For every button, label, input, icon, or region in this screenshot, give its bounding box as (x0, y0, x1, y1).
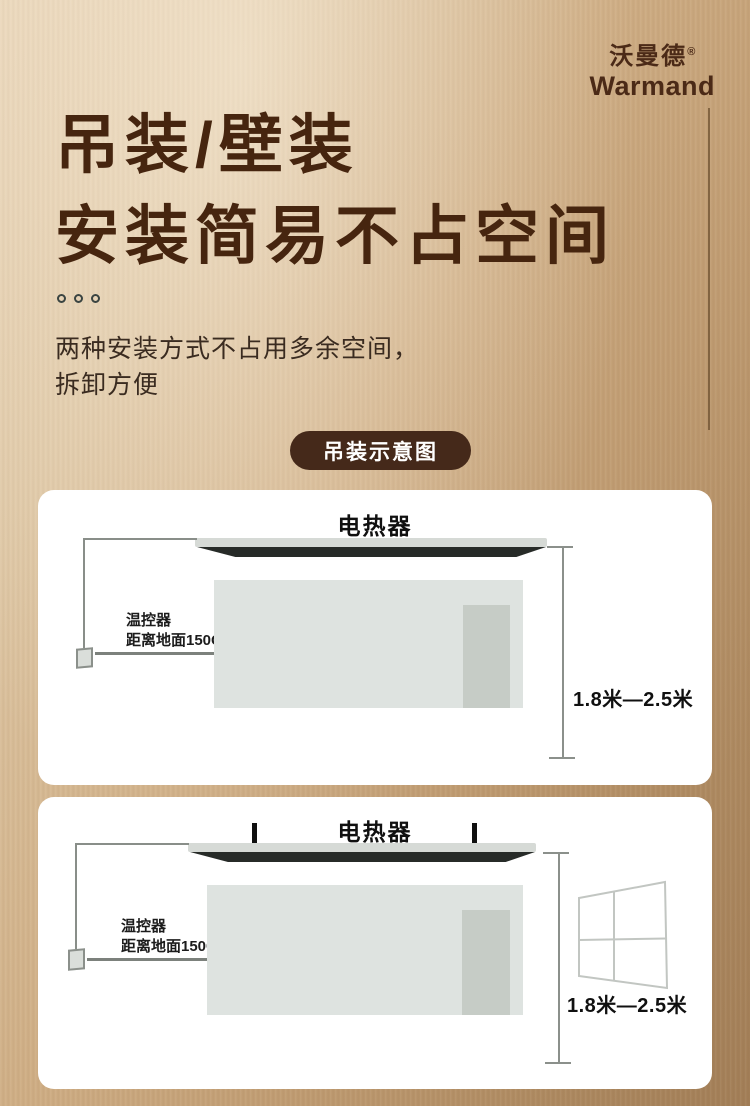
page-title: 吊装/壁装安装简易不占空间 (55, 100, 615, 282)
heater-panel-top (188, 843, 536, 852)
dimension-line (558, 853, 560, 1063)
section-badge-label: 吊装示意图 (323, 436, 438, 466)
subtitle-line1: 两种安装方式不占用多余空间， (55, 335, 419, 363)
mount-post-right (472, 823, 477, 844)
dimension-cap-bottom (549, 757, 575, 759)
thermostat-wire-horizontal (75, 843, 189, 845)
dot-icon (91, 294, 100, 303)
room-inner-rectangle (462, 910, 510, 1015)
thermostat-box (76, 647, 93, 668)
thermostat-wire-vertical (83, 538, 85, 650)
brand-name-cn: 沃曼德® (589, 44, 715, 71)
heater-panel-top (195, 538, 547, 547)
thermostat-label: 温控器 (126, 611, 171, 631)
heater-label: 电热器 (38, 507, 712, 541)
brand-name-en: Warmand (589, 71, 715, 101)
diagram-card-wall-mount: 电热器 温控器 距离地面150CM 1.8米—2.5米 (38, 797, 712, 1089)
dot-icon (57, 294, 66, 303)
thermostat-label: 温控器 (121, 917, 166, 937)
dimension-cap-top (543, 852, 569, 854)
page-title-line2: 安装简易不占空间 (55, 200, 615, 272)
diagram-card-ceiling-mount: 电热器 温控器 距离地面150CM 1.8米—2.5米 (38, 490, 712, 785)
page-title-line1: 吊装/壁装 (55, 109, 359, 181)
decorative-dots (57, 294, 100, 303)
heater-panel-bottom (190, 852, 535, 862)
mount-post-left (252, 823, 257, 844)
heater-panel-bottom (197, 547, 546, 557)
product-page: { "brand": { "name_cn": "沃曼德", "reg_mark… (0, 0, 750, 1106)
section-badge: 吊装示意图 (290, 431, 471, 470)
height-range-label: 1.8米—2.5米 (573, 683, 693, 712)
dimension-cap-bottom (545, 1062, 571, 1064)
subtitle: 两种安装方式不占用多余空间，拆卸方便 (55, 331, 419, 403)
thermostat-wire-horizontal (83, 538, 197, 540)
room-inner-rectangle (463, 605, 510, 708)
subtitle-line2: 拆卸方便 (55, 371, 159, 399)
decorative-vertical-line (708, 108, 710, 430)
registered-trademark-icon: ® (687, 46, 695, 58)
dimension-line (562, 547, 564, 758)
heater-label: 电热器 (38, 813, 712, 847)
window-graphic (573, 875, 673, 995)
brand-name-cn-text: 沃曼德 (609, 43, 687, 70)
thermostat-box (68, 948, 85, 970)
dot-icon (74, 294, 83, 303)
thermostat-wire-vertical (75, 843, 77, 951)
brand-logo: 沃曼德® Warmand (589, 44, 715, 101)
dimension-cap-top (547, 546, 573, 548)
